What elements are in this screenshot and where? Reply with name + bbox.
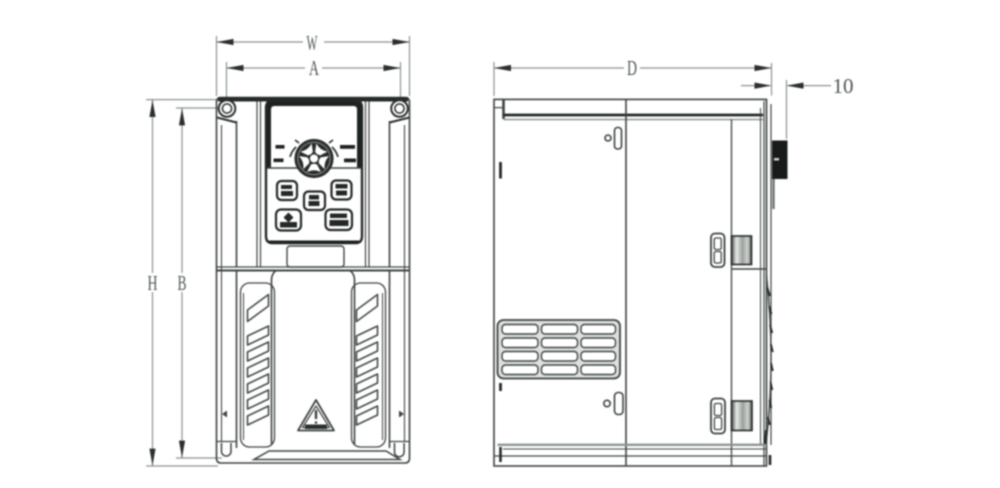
svg-text:10: 10: [833, 74, 854, 98]
svg-text:B: B: [178, 271, 187, 295]
svg-text:W: W: [307, 31, 318, 55]
svg-text:D: D: [627, 56, 637, 80]
svg-text:A: A: [309, 56, 320, 80]
svg-text:H: H: [148, 271, 158, 295]
